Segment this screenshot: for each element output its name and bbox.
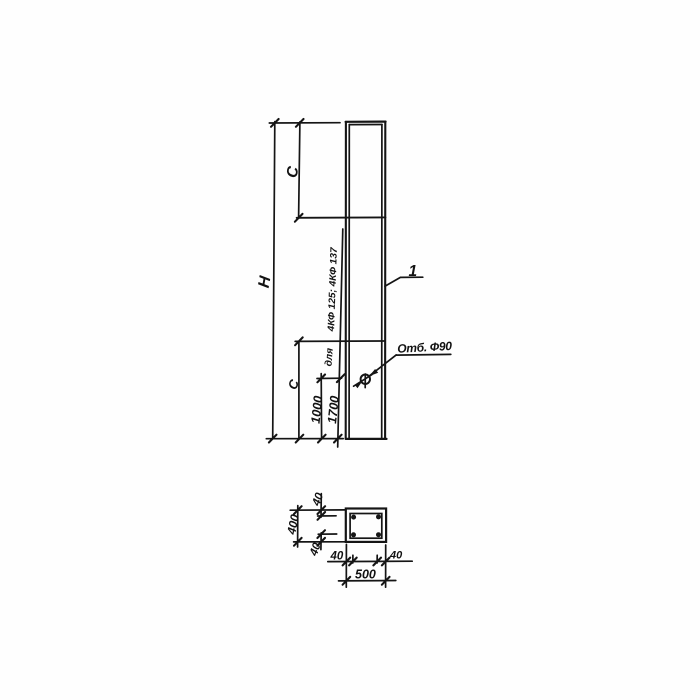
svg-text:Отб. Ф90: Отб. Ф90 (397, 339, 453, 356)
svg-text:1: 1 (409, 263, 418, 280)
svg-text:40: 40 (330, 551, 344, 563)
svg-text:400: 400 (284, 513, 302, 537)
svg-text:40: 40 (310, 491, 326, 509)
svg-text:4КФ 125; 4КФ 137: 4КФ 125; 4КФ 137 (326, 247, 340, 333)
svg-text:40: 40 (389, 550, 403, 562)
svg-text:для: для (324, 348, 336, 367)
svg-text:H: H (256, 274, 275, 289)
svg-text:1000: 1000 (309, 395, 326, 424)
svg-text:500: 500 (355, 567, 376, 581)
svg-text:1700: 1700 (325, 395, 342, 424)
